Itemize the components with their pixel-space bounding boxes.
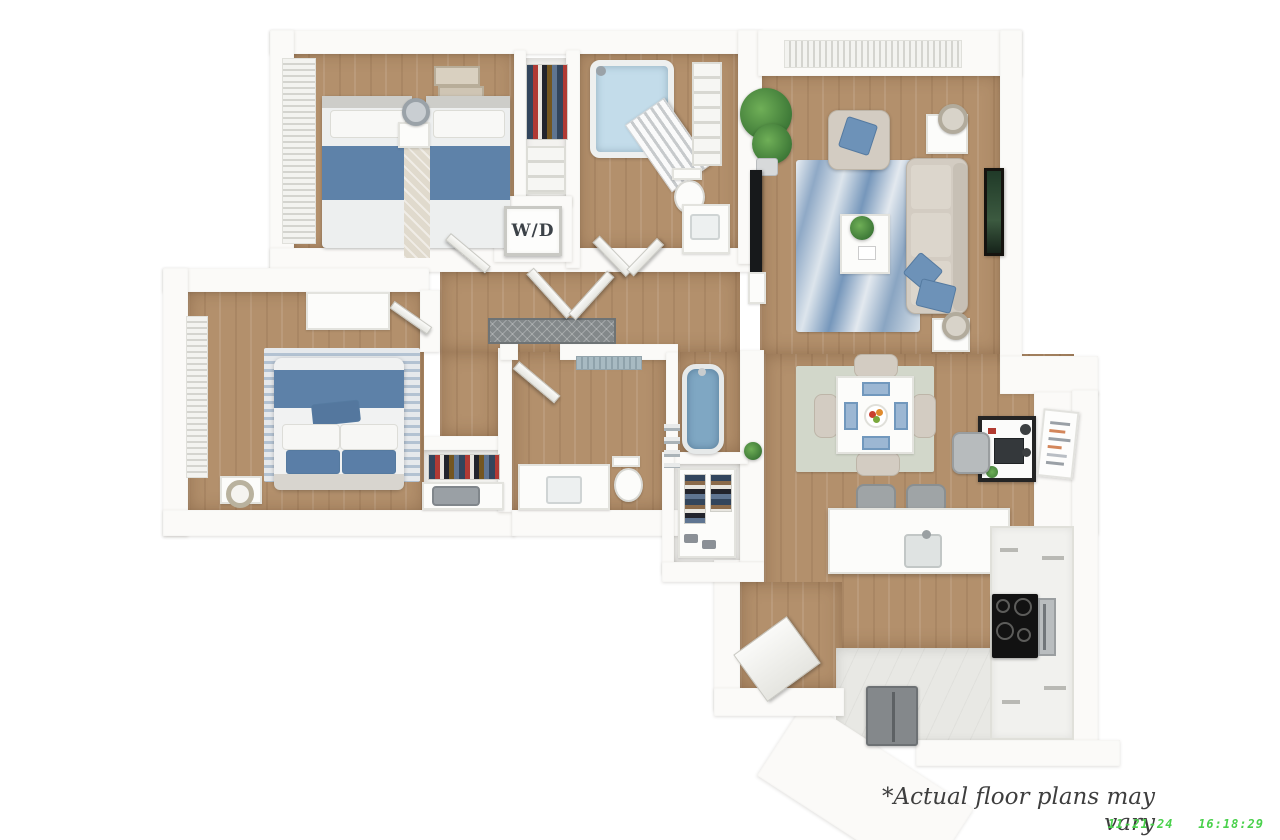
- island-faucet: [922, 530, 931, 539]
- twin-bed-2-headboard: [426, 96, 510, 108]
- placemat-east: [894, 402, 908, 430]
- poster-line-6: [1046, 461, 1064, 466]
- counter-item-1: [1000, 548, 1018, 552]
- linen-folded-clothes-1: [684, 474, 706, 524]
- twin-bed-1: [322, 96, 412, 248]
- master-dresser: [306, 292, 390, 330]
- closet-suitcase: [432, 486, 480, 506]
- master-pillow-white-1: [282, 424, 340, 450]
- poster-line-3: [1048, 437, 1070, 442]
- poster-line-1: [1050, 421, 1070, 426]
- living-wall-art: [984, 168, 1004, 256]
- desk-red-item: [988, 428, 996, 434]
- dining-chair-north: [854, 354, 898, 378]
- dining-chair-east: [912, 394, 936, 438]
- twin-bed-2-blanket: [426, 146, 510, 200]
- master-pillow-blue-1: [286, 450, 340, 474]
- timestamp-date: 11-21-24: [1108, 817, 1174, 831]
- wall-poster: [1037, 408, 1080, 479]
- bedroom2-wall-art: [434, 66, 480, 86]
- placemat-north: [862, 382, 890, 396]
- dressing-area-floor: [440, 352, 500, 436]
- bathroom1-sink: [690, 214, 720, 240]
- floor-plan-canvas: W/D: [0, 0, 1280, 840]
- wall-nook-top: [1000, 356, 1098, 394]
- shower-head: [596, 66, 606, 76]
- camera-timestamp: 11-21-24 16:18:29: [1040, 817, 1264, 831]
- wall-shelf-plant: [744, 442, 762, 460]
- fruit-plate: [864, 404, 888, 428]
- poster-line-5: [1047, 453, 1067, 458]
- tv-stand: [748, 272, 766, 304]
- dining-chair-west: [814, 394, 838, 438]
- ceiling-vent: [576, 356, 642, 370]
- toilet1-tank: [672, 168, 702, 180]
- linen-shoes-2: [702, 540, 716, 549]
- timestamp-gap: [1182, 817, 1190, 831]
- closet2-hanging-clothes: [526, 64, 568, 140]
- refrigerator-handle: [892, 692, 895, 742]
- master-sink: [546, 476, 582, 504]
- master-ring-lamp: [226, 480, 254, 508]
- placemat-west: [844, 402, 858, 430]
- bedroom2-lamp: [402, 98, 430, 126]
- oven-handle: [1043, 604, 1046, 650]
- dining-table: [836, 376, 914, 454]
- master-bed: [274, 358, 404, 490]
- wall-linen-left: [662, 452, 674, 574]
- linen-folded-clothes-2: [710, 474, 732, 512]
- oven-door: [1038, 598, 1056, 656]
- range-stove: [992, 594, 1038, 658]
- wall-master-bottom: [163, 510, 515, 536]
- fruit-orange: [876, 409, 883, 416]
- wall-master-left: [163, 268, 188, 536]
- twin-bed-1-blanket: [322, 146, 412, 200]
- twin-bed-1-pillow: [330, 110, 406, 138]
- wall-linen-bottom: [662, 562, 764, 582]
- wall-mbath-top-left: [500, 344, 518, 360]
- master-pillow-white-2: [340, 424, 398, 450]
- burner-2: [1014, 598, 1032, 616]
- wall-bedroom2-closet-divider: [514, 50, 526, 202]
- bathroom1-linen-shelf: [692, 62, 722, 166]
- towel-rack: [664, 424, 680, 468]
- table-lamp-south: [942, 312, 970, 340]
- timestamp-time: 16:18:29: [1198, 817, 1264, 831]
- closet2-shelf-tower: [526, 146, 566, 194]
- sofa-cushion-1: [911, 165, 951, 209]
- hallway-doormat: [488, 318, 616, 344]
- wall-dressing-closet-divider: [424, 436, 504, 450]
- bedroom2-window-blinds: [282, 58, 316, 244]
- office-chair: [952, 432, 990, 474]
- closet-clothes-rail: [428, 454, 500, 480]
- master-headboard: [274, 474, 404, 490]
- counter-item-2: [1042, 556, 1064, 560]
- master-accent-pillow: [311, 400, 361, 427]
- master-pillow-blue-2: [342, 450, 396, 474]
- island-sink: [904, 534, 942, 568]
- wall-mbath-bottom: [512, 510, 680, 536]
- burner-4: [1017, 628, 1031, 642]
- coffee-table-magazine: [858, 246, 876, 260]
- master-window-blinds: [186, 316, 208, 478]
- soaking-tub: [682, 364, 724, 454]
- sofa-cushion-2: [911, 213, 951, 257]
- refrigerator: [866, 686, 918, 746]
- tub-faucet: [698, 368, 706, 376]
- poster-line-4: [1048, 445, 1062, 449]
- fruit-green: [873, 416, 880, 423]
- dining-chair-south: [856, 452, 900, 476]
- toilet2-bowl: [614, 468, 643, 502]
- placemat-south: [862, 436, 890, 450]
- counter-item-4: [1002, 700, 1020, 704]
- twin-bed-2-pillow: [433, 110, 505, 138]
- wall-master-top: [163, 268, 429, 292]
- bedroom2-runner-rug: [404, 144, 430, 258]
- living-window-blinds: [784, 40, 962, 68]
- toilet2-tank: [612, 456, 640, 467]
- desk-speaker-2: [1022, 448, 1031, 457]
- linen-shoes-1: [684, 534, 698, 543]
- poster-line-2: [1049, 429, 1065, 434]
- table-lamp-north: [938, 104, 968, 134]
- desk-monitor: [994, 438, 1024, 464]
- washer-dryer-label: W/D: [511, 221, 554, 241]
- burner-1: [996, 599, 1010, 613]
- tv: [750, 170, 762, 272]
- burner-3: [996, 622, 1014, 640]
- desk-speaker-1: [1020, 424, 1031, 435]
- counter-item-3: [1044, 686, 1066, 690]
- twin-bed-2: [426, 96, 510, 248]
- wall-kitchen-bottom: [916, 740, 1120, 766]
- washer-dryer-unit: W/D: [504, 206, 562, 256]
- coffee-table-plant: [850, 216, 874, 240]
- twin-bed-1-headboard: [322, 96, 412, 108]
